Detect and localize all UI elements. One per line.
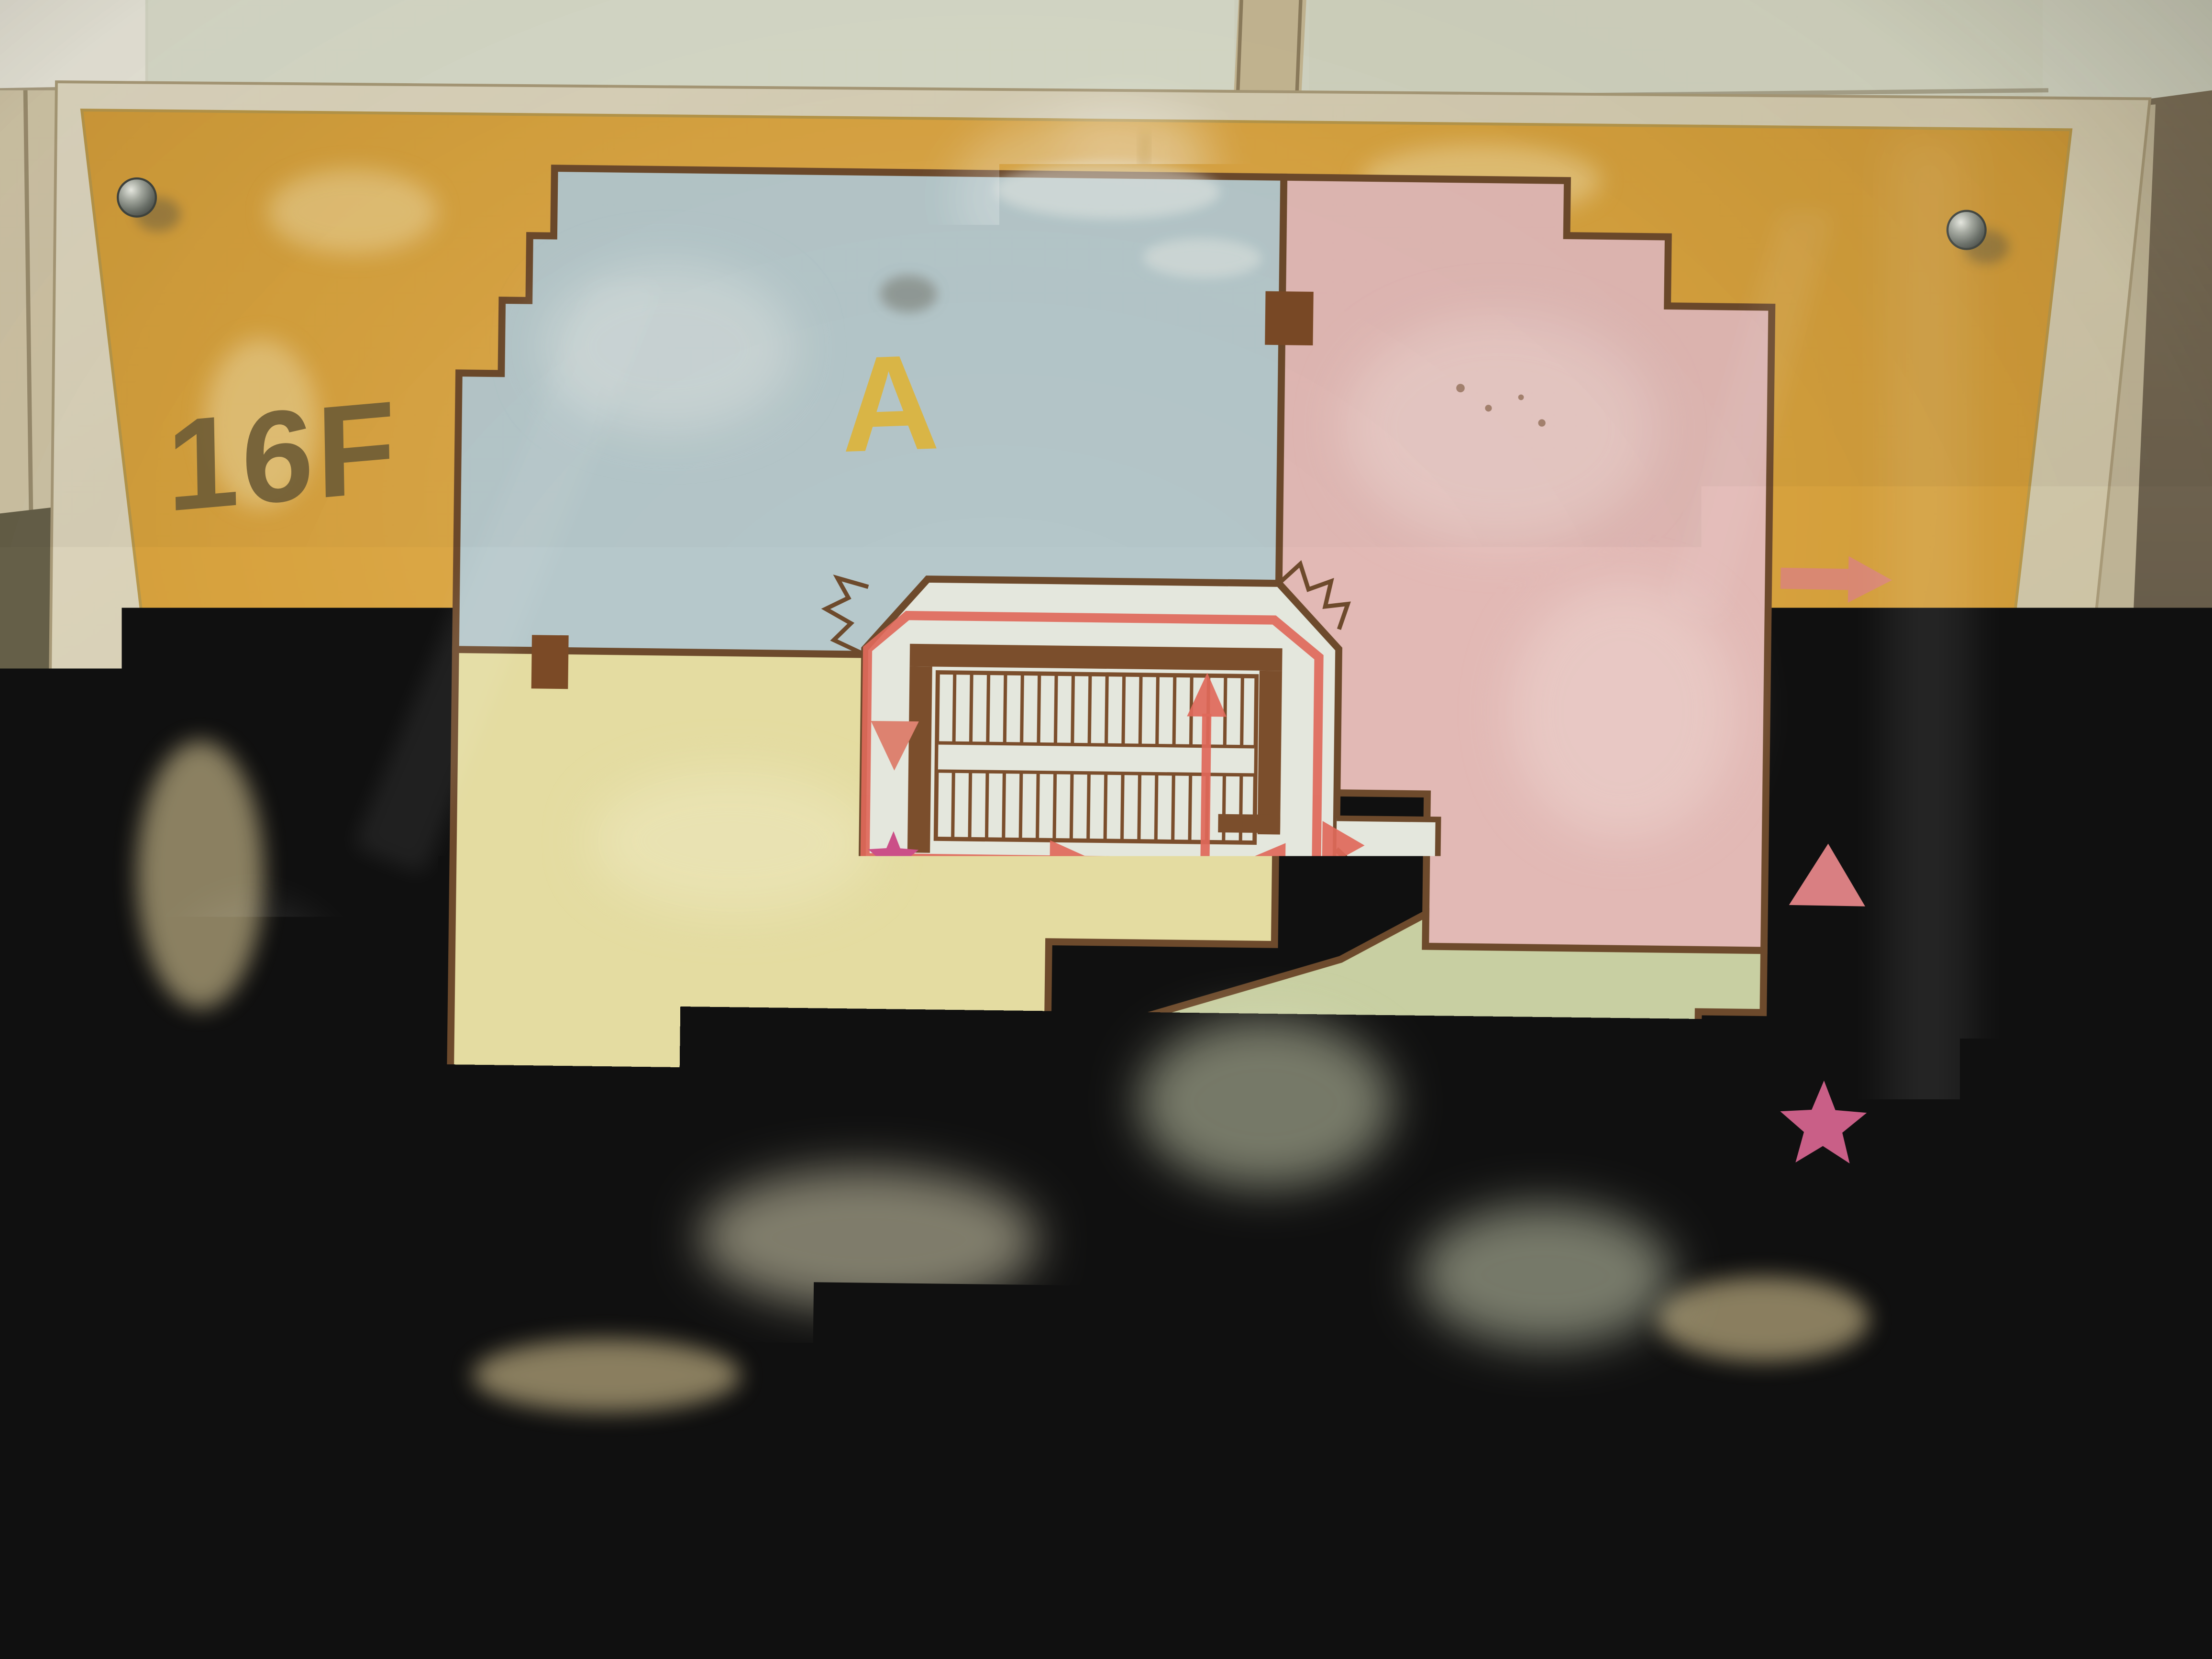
legend-label-fire-extinguisher: 灭火器 <box>1801 1167 1880 1350</box>
zone-label-a: A <box>838 326 941 484</box>
escape-plan-sign-photo: 16F 疏散平面图 ESCAPE WAY A B C D 疏散通道 消防栓 灭火… <box>0 0 2212 1659</box>
photo-viewport: 16F 疏散平面图 ESCAPE WAY A B C D 疏散通道 消防栓 灭火… <box>0 0 2212 1659</box>
zone-label-d: D <box>1464 543 1568 701</box>
zone-label-c: C <box>1321 1144 1416 1291</box>
zone-label-b: B <box>649 986 752 1144</box>
floor-label: 16F <box>166 374 399 542</box>
legend-label-fire-hydrant: 消防栓 <box>1804 930 1883 1114</box>
legend-label-evacuation-route: 疏散通道 <box>1805 623 1885 867</box>
